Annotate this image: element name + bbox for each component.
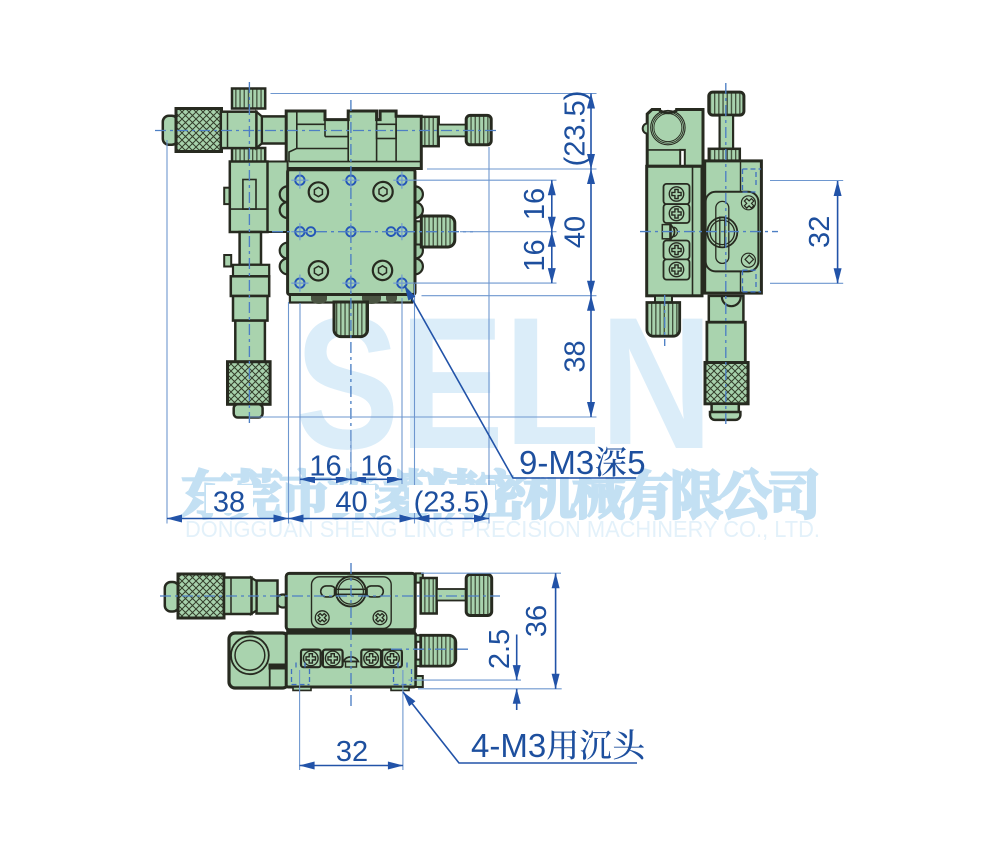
svg-text:9-M3: 9-M3 <box>519 444 594 481</box>
svg-text:(23.5): (23.5) <box>560 91 592 167</box>
svg-text:40: 40 <box>560 216 592 248</box>
svg-text:16: 16 <box>519 188 551 220</box>
svg-text:4-M3: 4-M3 <box>471 727 546 764</box>
svg-text:DONGGUAN SHENG LING PRECISION: DONGGUAN SHENG LING PRECISION MACHINERY … <box>185 516 820 542</box>
svg-text:40: 40 <box>335 487 367 519</box>
svg-text:5: 5 <box>627 444 645 481</box>
svg-text:(23.5): (23.5) <box>414 487 490 519</box>
svg-text:16: 16 <box>360 451 392 483</box>
svg-text:32: 32 <box>336 736 368 768</box>
svg-text:2.5: 2.5 <box>484 629 516 669</box>
svg-text:38: 38 <box>560 340 592 372</box>
svg-text:38: 38 <box>213 487 245 519</box>
svg-text:16: 16 <box>519 239 551 271</box>
svg-text:32: 32 <box>804 216 836 248</box>
svg-text:16: 16 <box>309 451 341 483</box>
svg-text:36: 36 <box>521 605 553 637</box>
